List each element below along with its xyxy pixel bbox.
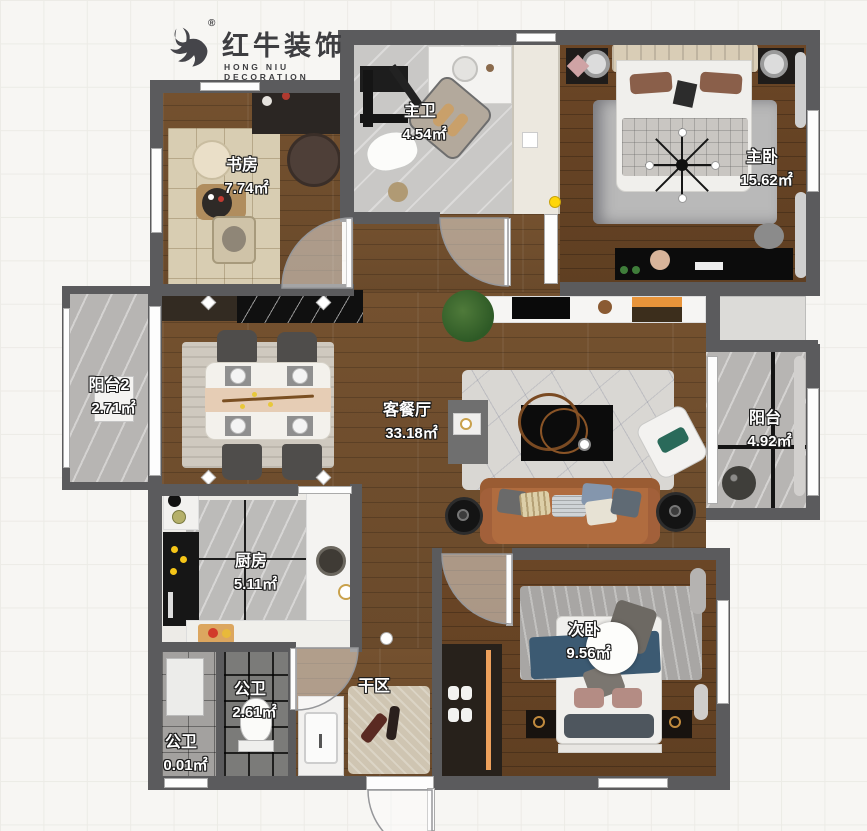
room-label-guest-bath: 公卫 2.61㎡ [223, 679, 276, 723]
door-arc-entry [368, 790, 432, 831]
door-arc-guestbath [296, 648, 358, 710]
room-label-master-bedroom: 主卧 15.62㎡ [731, 147, 793, 191]
room-area: 5.11㎡ [234, 575, 277, 595]
door-arc-study [282, 218, 352, 288]
brand-name: 红牛装饰 [222, 24, 346, 63]
room-name: 主卧 [731, 147, 793, 169]
room-name: 客餐厅 [376, 400, 438, 422]
room-area: 33.18㎡ [385, 424, 438, 444]
room-name: 公卫 [154, 732, 207, 754]
room-area: 7.74㎡ [224, 179, 268, 199]
room-label-living-dining: 客餐厅 33.18㎡ [376, 400, 438, 444]
floorplan-canvas: ® 红牛装饰 HONG NIU DECORATION [0, 0, 867, 831]
room-label-second-bedroom: 次卧 9.56㎡ [557, 620, 610, 664]
room-label-kitchen: 厨房 5.11㎡ [225, 551, 277, 595]
room-name: 次卧 [557, 620, 610, 642]
room-label-study: 书房 7.74㎡ [215, 155, 268, 199]
room-area: 9.56㎡ [566, 644, 610, 664]
room-name: 厨房 [225, 551, 277, 573]
marker-dot-yellow [549, 196, 561, 208]
room-label-balcony: 阳台 4.92㎡ [738, 408, 791, 452]
room-name: 书房 [215, 155, 268, 177]
room-name: 干区 [358, 676, 390, 698]
room-area: 2.61㎡ [232, 703, 276, 723]
room-name: 主卫 [393, 101, 446, 123]
room-label-balcony2: 阳台2 2.71㎡ [82, 375, 135, 419]
room-name: 阳台 [738, 408, 791, 430]
room-name: 阳台2 [82, 375, 135, 397]
room-name: 公卫 [223, 679, 276, 701]
door-arc-masterbath [440, 218, 508, 286]
logo: ® 红牛装饰 HONG NIU DECORATION [164, 18, 374, 78]
room-area: 0.01㎡ [163, 756, 207, 776]
room-area: 4.92㎡ [747, 432, 791, 452]
room-area: 15.62㎡ [740, 171, 793, 191]
bull-icon [164, 24, 210, 72]
room-label-master-bath: 主卫 4.54㎡ [393, 101, 446, 145]
room-label-dry-area: 干区 [358, 676, 390, 698]
room-label-guest-bath2: 公卫 0.01㎡ [154, 732, 207, 776]
door-arc-bedroom2 [442, 554, 512, 624]
room-area: 2.71㎡ [91, 399, 135, 419]
registered-mark: ® [208, 18, 215, 29]
brand-subtitle: HONG NIU DECORATION [224, 62, 374, 82]
room-area: 4.54㎡ [402, 125, 446, 145]
